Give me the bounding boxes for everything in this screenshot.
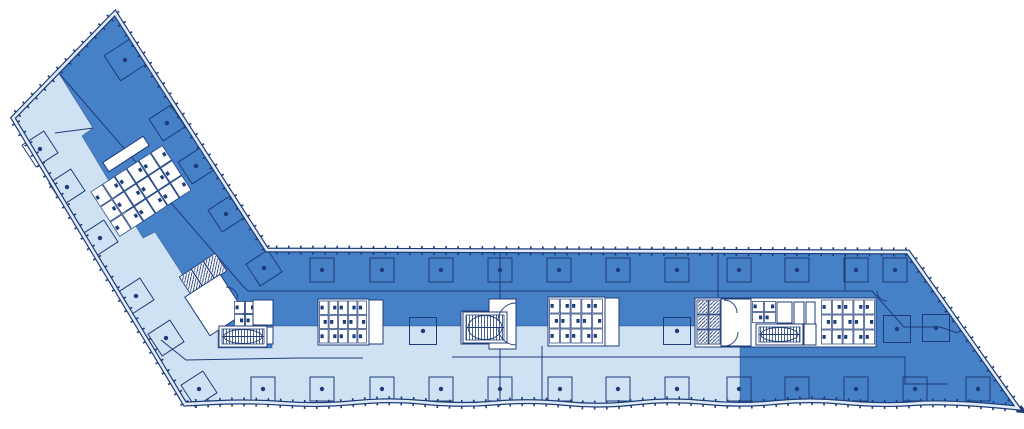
core2-wc <box>550 299 603 343</box>
fixture-mark <box>594 334 597 338</box>
fixture-mark <box>771 305 774 309</box>
fixture-mark <box>759 316 762 320</box>
fixture-mark <box>838 305 841 309</box>
right-room-c <box>806 302 815 324</box>
fixture-mark <box>598 319 601 323</box>
column-dot <box>320 387 324 391</box>
shaft-hatch <box>698 301 707 313</box>
fixture-mark <box>551 334 554 338</box>
fixture-mark <box>343 320 346 324</box>
column-dot <box>380 387 384 391</box>
floorplan-image <box>0 0 1024 429</box>
fixture-mark <box>833 320 836 324</box>
fixture-mark <box>866 305 869 309</box>
column-dot <box>439 268 443 272</box>
right-stair <box>756 324 803 345</box>
fixture-mark <box>844 305 847 309</box>
fixture-mark <box>866 335 869 339</box>
fixture-mark <box>333 334 336 338</box>
fixture-mark <box>362 320 365 324</box>
fixture-mark <box>572 304 575 308</box>
column-dot <box>795 387 799 391</box>
junction-stair <box>219 326 267 347</box>
column-dot <box>737 387 741 391</box>
fixture-mark <box>587 304 590 308</box>
fixture-mark <box>583 319 586 323</box>
column-dot <box>616 387 620 391</box>
shaft-hatch <box>698 331 707 343</box>
column-dot <box>558 387 562 391</box>
fixture-mark <box>240 319 243 323</box>
column-dot <box>675 268 679 272</box>
fixture-mark <box>349 320 352 324</box>
fixture-mark <box>555 319 558 323</box>
column-dot <box>675 329 679 333</box>
column-dot <box>893 268 897 272</box>
fixture-mark <box>321 306 324 310</box>
fixture-mark <box>352 334 355 338</box>
fixture-mark <box>859 305 862 309</box>
column-dot <box>976 387 980 391</box>
junction-shaft-a <box>253 300 273 325</box>
fixture-mark <box>340 334 343 338</box>
fixture-mark <box>855 320 858 324</box>
fixture-mark <box>823 335 826 339</box>
column-dot <box>557 268 561 272</box>
column-dot <box>616 268 620 272</box>
column-dot <box>320 268 324 272</box>
column-dot <box>421 329 425 333</box>
right-wc-large <box>822 300 875 344</box>
fixture-mark <box>359 306 362 310</box>
fixture-mark <box>321 334 324 338</box>
column-dot <box>795 268 799 272</box>
fixture-mark <box>827 320 830 324</box>
fixture-mark <box>324 320 327 324</box>
fixture-mark <box>236 306 239 310</box>
fixture-mark <box>572 334 575 338</box>
column-dot <box>737 268 741 272</box>
column-dot <box>913 387 917 391</box>
fixture-mark <box>587 334 590 338</box>
fixture-mark <box>848 320 851 324</box>
fixture-mark <box>823 305 826 309</box>
fixture-mark <box>870 320 873 324</box>
column-dot <box>498 387 502 391</box>
fixture-mark <box>844 335 847 339</box>
fixture-mark <box>333 306 336 310</box>
core1-shaft <box>369 300 383 344</box>
fixture-mark <box>594 304 597 308</box>
right-room-b <box>794 302 804 324</box>
column-dot <box>380 268 384 272</box>
fixture-mark <box>576 319 579 323</box>
right-shaft <box>804 324 816 345</box>
fixture-mark <box>330 320 333 324</box>
fixture-mark <box>359 334 362 338</box>
right-room-a <box>777 302 792 323</box>
fixture-mark <box>561 319 564 323</box>
fixture-mark <box>551 304 554 308</box>
column-dot <box>934 326 938 330</box>
fixture-mark <box>247 319 250 323</box>
stair-mid2 <box>463 312 507 343</box>
column-dot <box>498 268 502 272</box>
fixture-mark <box>566 334 569 338</box>
floorplan-svg <box>0 0 1024 429</box>
fixture-mark <box>566 304 569 308</box>
fixture-mark <box>859 335 862 339</box>
shaft-hatch <box>710 331 719 343</box>
fixture-mark <box>352 306 355 310</box>
column-dot <box>854 268 858 272</box>
shaft-hatch <box>710 316 719 328</box>
fixture-mark <box>838 335 841 339</box>
core1-wc <box>320 301 367 343</box>
column-dot <box>854 387 858 391</box>
shaft-hatch <box>698 316 707 328</box>
fixture-mark <box>340 306 343 310</box>
fixture-mark <box>754 305 757 309</box>
fixture-mark <box>766 316 769 320</box>
column-dot <box>675 387 679 391</box>
core2-shaft <box>605 298 619 346</box>
shaft-hatch <box>710 301 719 313</box>
column-dot <box>261 387 265 391</box>
column-dot <box>895 327 899 331</box>
column-dot <box>439 387 443 391</box>
